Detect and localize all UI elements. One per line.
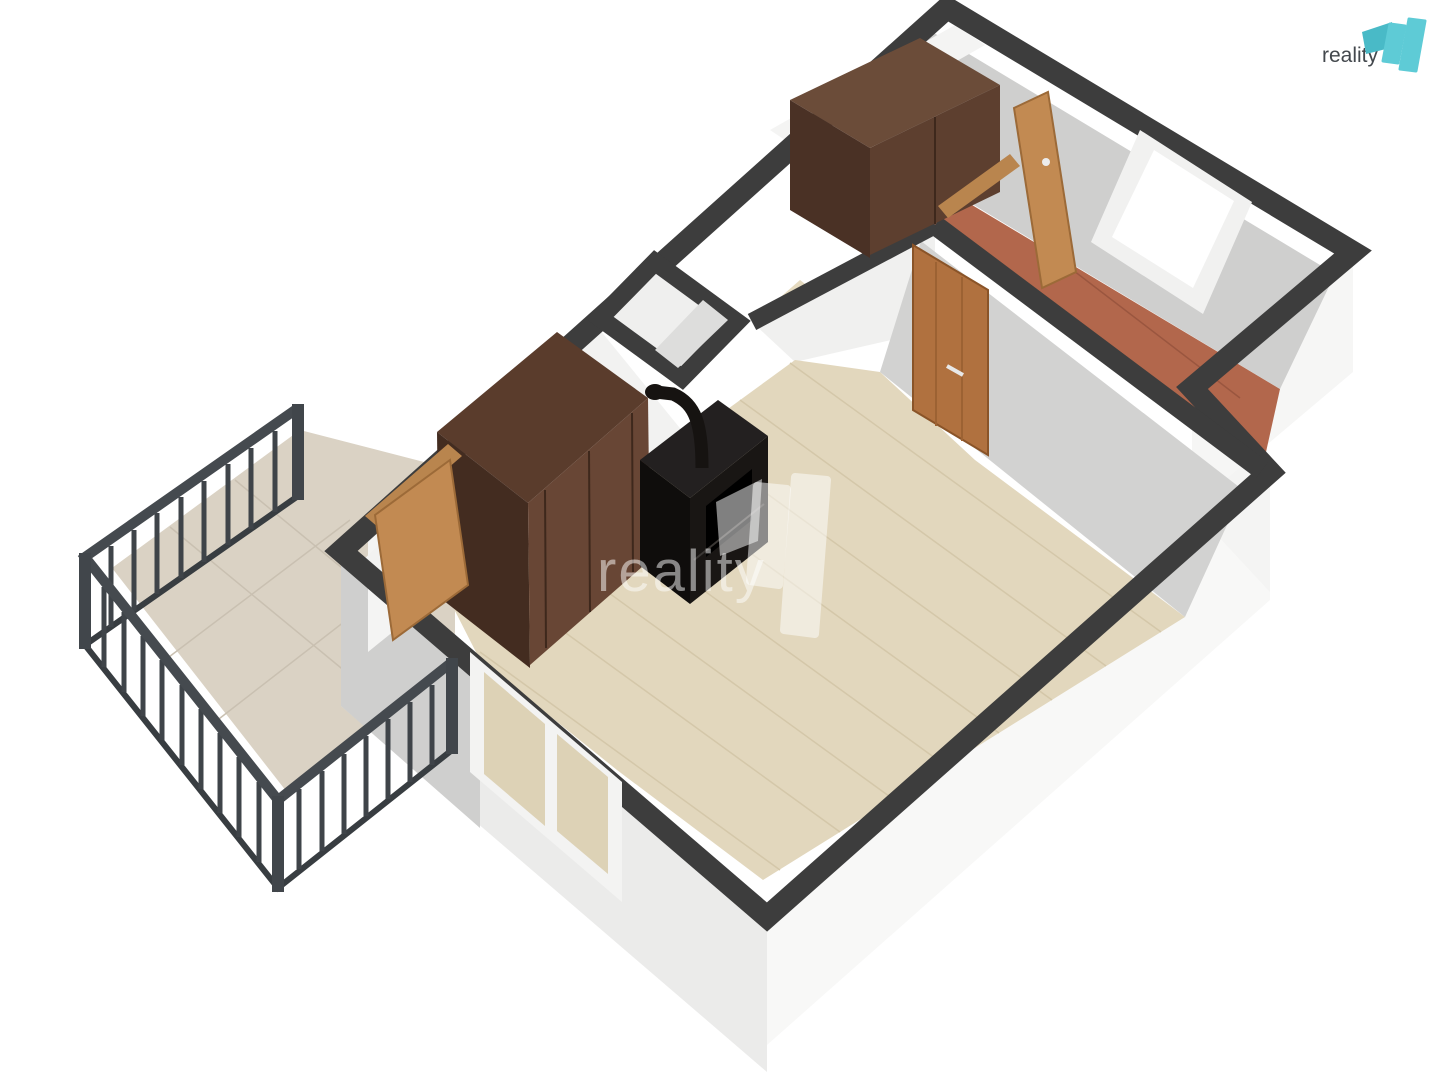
stove-pipe-flange <box>645 384 665 400</box>
floorplan-3d-render: realityreality <box>0 0 1440 1080</box>
watermark-glyph-bar2 <box>784 477 827 634</box>
watermark-glyph-bar1 <box>750 486 787 585</box>
watermark-text: reality <box>597 539 766 604</box>
wardrobe-livingroom-doorline <box>545 490 546 648</box>
floorplan-scene: realityreality <box>0 0 1440 1080</box>
bedroom-door-handle <box>1042 158 1050 166</box>
wardrobe-livingroom-doorline <box>589 451 590 612</box>
